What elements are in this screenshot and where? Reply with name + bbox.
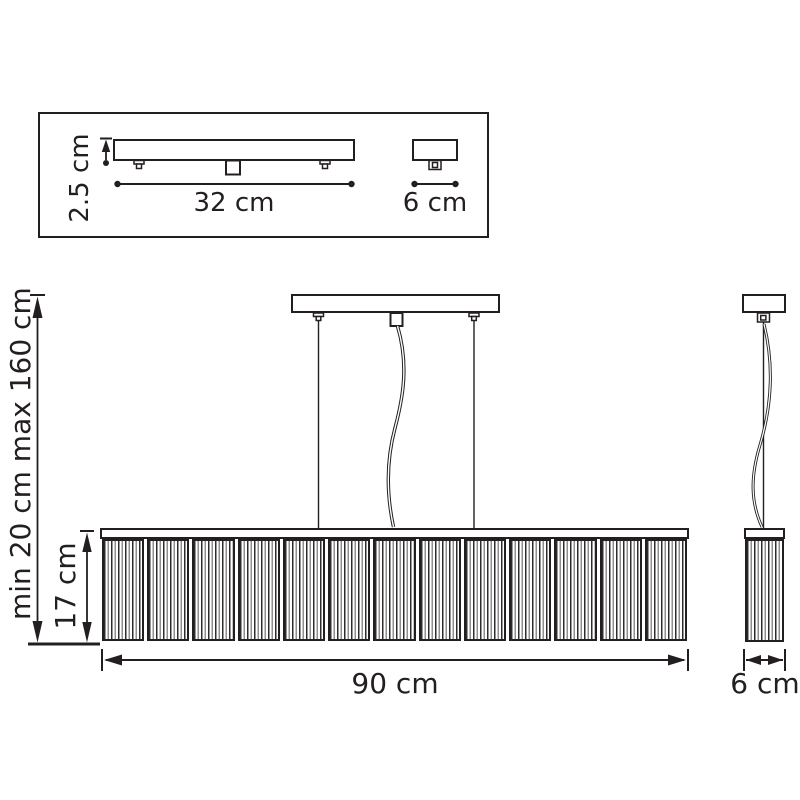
shade-panel bbox=[373, 539, 415, 641]
shade-panel bbox=[328, 539, 370, 641]
dimension-drawing: 2.5 cm 32 cm 6 cm min 20 cm max 160 cm 1… bbox=[0, 0, 800, 800]
shade-panel bbox=[600, 539, 642, 641]
shade-panel bbox=[645, 539, 687, 641]
shade-panel bbox=[464, 539, 506, 641]
shade-panel bbox=[283, 539, 325, 641]
shade-panel bbox=[102, 539, 144, 641]
front-cable-clip-icon bbox=[314, 313, 480, 321]
shade-width-label: 90 cm bbox=[335, 669, 455, 700]
shade-panel bbox=[238, 539, 280, 641]
front-canopy bbox=[291, 294, 500, 313]
small-plate-width-label: 6 cm bbox=[395, 189, 475, 218]
side-width-label: 6 cm bbox=[715, 669, 800, 700]
mounting-detail-box bbox=[38, 112, 489, 238]
shade-height-label: 17 cm bbox=[51, 541, 81, 631]
side-shade-top-rail bbox=[744, 528, 785, 539]
mounting-plate-long bbox=[113, 139, 355, 161]
plate-height-label: 2.5 cm bbox=[66, 132, 96, 224]
shade-panel bbox=[192, 539, 234, 641]
front-shade-top-rail bbox=[100, 528, 689, 539]
side-power-cord bbox=[753, 324, 770, 527]
side-cord-connector-icon bbox=[758, 313, 770, 322]
side-canopy bbox=[742, 294, 786, 313]
front-shade-panels bbox=[102, 539, 687, 641]
side-shade-panel bbox=[745, 539, 784, 642]
suspension-height-label: min 20 cm max 160 cm bbox=[6, 320, 38, 620]
shade-panel bbox=[147, 539, 189, 641]
shade-panel bbox=[554, 539, 596, 641]
shade-height-dim bbox=[80, 531, 94, 643]
front-power-cord bbox=[388, 326, 403, 527]
shade-panel bbox=[419, 539, 461, 641]
plate-width-label: 32 cm bbox=[184, 189, 284, 218]
front-cord-connector-icon bbox=[391, 313, 403, 326]
shade-panel bbox=[509, 539, 551, 641]
mounting-plate-small bbox=[412, 139, 458, 161]
front-cables bbox=[319, 316, 475, 528]
